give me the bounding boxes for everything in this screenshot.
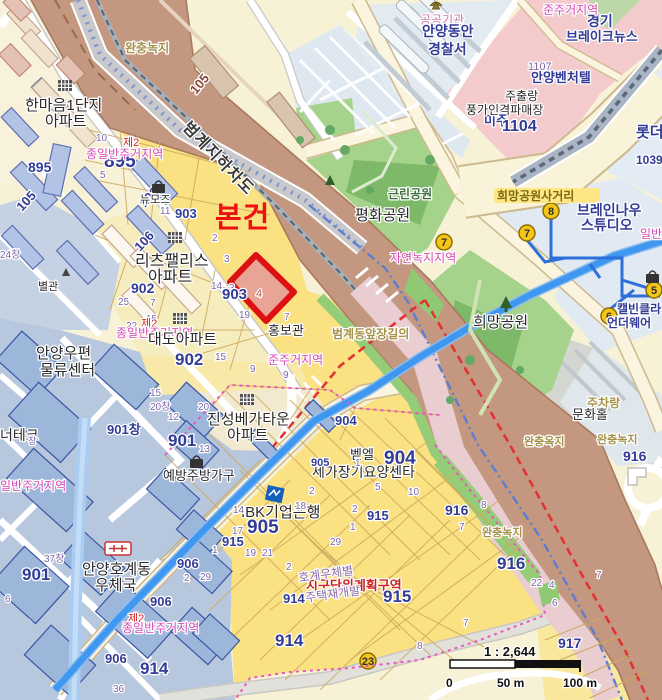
svg-text:대도아파트: 대도아파트: [148, 331, 217, 348]
svg-text:7: 7: [150, 298, 156, 309]
svg-text:종일반주거지역: 종일반주거지역: [122, 621, 199, 635]
svg-text:종일반주거지역: 종일반주거지역: [86, 147, 163, 161]
svg-text:근린공원: 근린공원: [388, 186, 432, 201]
svg-text:주출랑: 주출랑: [505, 89, 538, 103]
svg-text:5: 5: [100, 170, 106, 181]
svg-text:5: 5: [375, 482, 381, 493]
svg-text:7: 7: [596, 570, 602, 581]
svg-text:1107: 1107: [528, 61, 552, 73]
svg-text:언더웨어: 언더웨어: [607, 315, 651, 330]
svg-text:준주거지역: 준주거지역: [543, 3, 598, 17]
svg-text:본건: 본건: [215, 201, 270, 234]
svg-text:902: 902: [175, 350, 203, 369]
svg-text:15: 15: [150, 388, 162, 399]
svg-text:2: 2: [212, 233, 218, 244]
svg-text:우체국: 우체국: [95, 577, 137, 594]
svg-text:희망공원사거리: 희망공원사거리: [497, 188, 574, 203]
svg-text:903: 903: [175, 206, 197, 221]
svg-text:906: 906: [105, 651, 127, 666]
svg-text:915: 915: [222, 534, 244, 549]
svg-text:2: 2: [309, 486, 315, 497]
svg-text:12: 12: [168, 412, 180, 423]
svg-text:홍보관: 홍보관: [268, 323, 304, 338]
svg-text:완충녹지: 완충녹지: [482, 525, 522, 539]
svg-text:13: 13: [199, 444, 211, 455]
svg-text:36: 36: [113, 684, 125, 695]
svg-text:914: 914: [140, 659, 169, 678]
svg-text:6: 6: [552, 598, 558, 609]
svg-text:1: 1: [350, 522, 356, 533]
svg-text:예방주방가구: 예방주방가구: [163, 468, 235, 483]
svg-text:905: 905: [247, 517, 279, 538]
svg-text:범계동앞장길의: 범계동앞장길의: [332, 326, 409, 341]
svg-text:캘빈클라인: 캘빈클라인: [617, 301, 662, 316]
svg-text:완충녹지: 완충녹지: [125, 40, 169, 55]
svg-text:1: 1: [212, 545, 218, 556]
svg-text:자연녹지지역: 자연녹지지역: [390, 251, 456, 265]
svg-text:904: 904: [335, 413, 357, 428]
svg-text:903: 903: [222, 286, 247, 303]
svg-text:7: 7: [459, 522, 465, 533]
svg-text:일반: 일반: [640, 227, 662, 241]
svg-text:아파트: 아파트: [45, 113, 87, 130]
svg-text:915: 915: [367, 508, 389, 523]
svg-text:21: 21: [262, 548, 274, 559]
svg-text:29: 29: [330, 537, 342, 548]
svg-text:브레인나우: 브레인나우: [577, 202, 642, 218]
svg-text:15: 15: [215, 352, 227, 363]
svg-text:일반주거지역: 일반주거지역: [0, 479, 66, 493]
svg-text:문화홀: 문화홀: [572, 407, 608, 422]
svg-text:100 m: 100 m: [563, 676, 597, 690]
svg-text:4: 4: [256, 288, 262, 300]
svg-text:895: 895: [28, 159, 52, 175]
svg-text:1 : 2,644: 1 : 2,644: [484, 644, 536, 659]
svg-text:2: 2: [352, 504, 358, 515]
svg-text:4: 4: [549, 580, 555, 591]
svg-text:아파트: 아파트: [227, 427, 269, 444]
svg-text:50 m: 50 m: [497, 676, 524, 690]
svg-text:안양동안: 안양동안: [422, 23, 474, 39]
svg-text:24창: 24창: [0, 249, 20, 261]
svg-text:915: 915: [383, 587, 411, 606]
svg-text:19: 19: [239, 310, 251, 321]
svg-text:9: 9: [283, 370, 289, 381]
svg-text:벧엘: 벧엘: [350, 447, 374, 462]
svg-text:6: 6: [5, 594, 11, 605]
svg-text:2: 2: [184, 573, 190, 584]
svg-text:진성베가타운: 진성베가타운: [207, 411, 290, 428]
svg-text:22: 22: [531, 578, 543, 589]
svg-text:906: 906: [150, 594, 172, 609]
svg-text:901: 901: [22, 565, 50, 584]
svg-text:19: 19: [245, 548, 257, 559]
svg-text:뉴모즈: 뉴모즈: [140, 193, 170, 206]
svg-text:8: 8: [481, 500, 487, 511]
svg-text:한마음1단지: 한마음1단지: [25, 97, 102, 114]
svg-text:아파트: 아파트: [148, 268, 192, 286]
svg-text:별관: 별관: [38, 280, 58, 293]
svg-text:완충녹지: 완충녹지: [597, 432, 637, 446]
svg-text:5: 5: [651, 285, 657, 297]
svg-text:14: 14: [211, 281, 223, 292]
svg-text:스튜디오: 스튜디오: [581, 217, 633, 233]
svg-text:경찰서: 경찰서: [428, 41, 467, 57]
svg-text:10: 10: [96, 133, 108, 144]
svg-text:준주거지역: 준주거지역: [268, 353, 323, 367]
svg-text:10: 10: [408, 487, 420, 498]
svg-text:1039: 1039: [636, 153, 662, 167]
svg-text:18: 18: [295, 501, 307, 512]
svg-text:25: 25: [118, 297, 130, 308]
svg-text:11: 11: [160, 206, 171, 217]
svg-text:916: 916: [497, 554, 525, 573]
svg-text:안양호계동: 안양호계동: [82, 561, 151, 578]
svg-text:1: 1: [355, 458, 361, 469]
svg-text:안양우편: 안양우편: [36, 345, 91, 362]
svg-text:905: 905: [311, 457, 329, 469]
svg-text:901창: 901창: [107, 422, 141, 437]
svg-text:희망공원: 희망공원: [473, 314, 528, 331]
svg-text:37창: 37창: [44, 553, 64, 565]
svg-text:916: 916: [623, 448, 647, 464]
svg-text:평화공원: 평화공원: [355, 207, 410, 224]
svg-text:풍가인격파매장: 풍가인격파매장: [466, 103, 543, 117]
svg-text:리츠팰리스: 리츠팰리스: [135, 252, 209, 270]
svg-text:7: 7: [284, 312, 290, 323]
svg-text:완충옥지: 완충옥지: [524, 434, 564, 448]
svg-text:창: 창: [28, 436, 36, 446]
svg-text:901: 901: [168, 431, 196, 450]
svg-text:914: 914: [275, 631, 304, 650]
svg-text:917: 917: [558, 635, 582, 651]
svg-text:2: 2: [286, 562, 292, 573]
svg-text:9: 9: [250, 364, 256, 375]
svg-text:1104: 1104: [502, 118, 537, 135]
svg-text:3: 3: [224, 254, 230, 265]
svg-text:914: 914: [283, 591, 305, 606]
svg-text:7: 7: [463, 618, 469, 629]
svg-text:906: 906: [177, 556, 199, 571]
svg-text:8: 8: [417, 641, 423, 652]
svg-text:롯더: 롯더: [636, 124, 662, 141]
svg-text:7: 7: [524, 228, 530, 240]
svg-text:14: 14: [233, 505, 245, 516]
svg-text:0: 0: [446, 676, 453, 690]
svg-text:8: 8: [548, 206, 554, 218]
svg-text:29: 29: [200, 572, 212, 583]
svg-text:902: 902: [131, 280, 155, 296]
svg-text:916: 916: [445, 502, 469, 518]
svg-text:물류센터: 물류센터: [40, 362, 95, 379]
svg-text:7: 7: [441, 237, 447, 249]
svg-text:브레이크뉴스: 브레이크뉴스: [566, 29, 638, 44]
